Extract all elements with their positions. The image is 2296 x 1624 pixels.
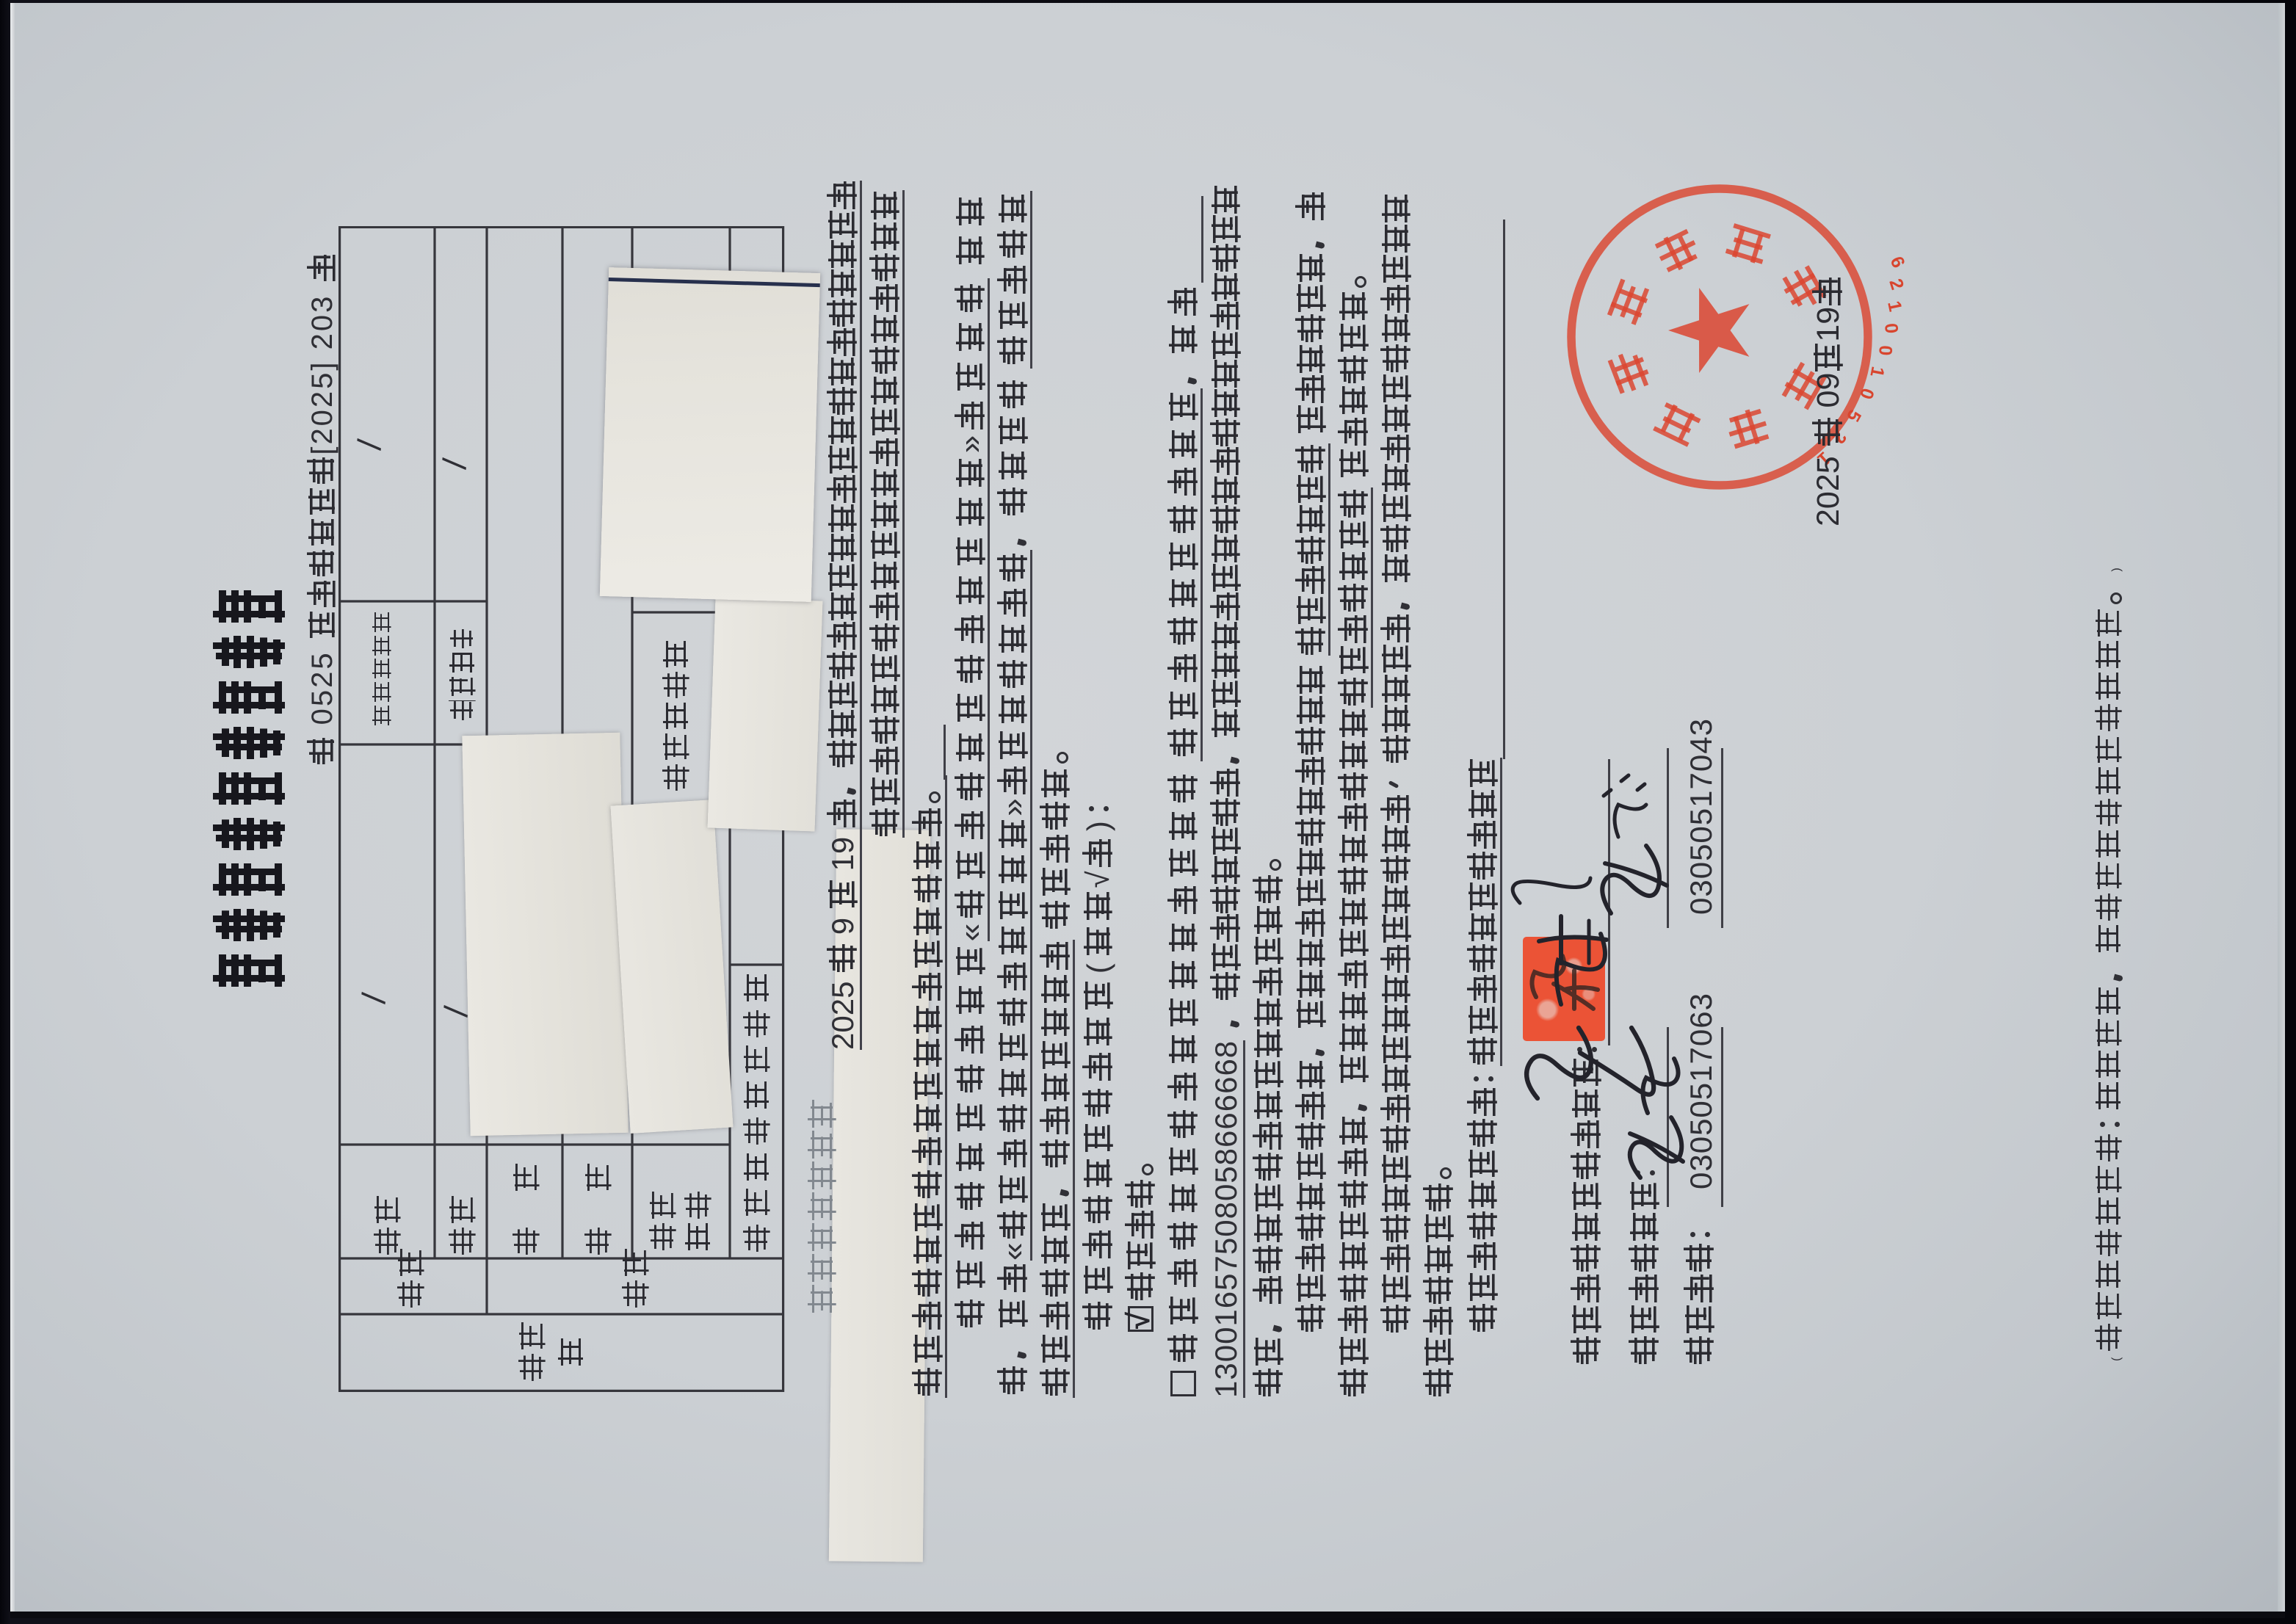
svg-text:0: 0	[1880, 322, 1902, 334]
svg-text:2: 2	[1885, 276, 1908, 292]
svg-text:0: 0	[1875, 345, 1896, 356]
svg-text:6: 6	[1886, 253, 1909, 271]
svg-text:1: 1	[1883, 299, 1905, 313]
svg-text:1: 1	[1866, 365, 1888, 379]
